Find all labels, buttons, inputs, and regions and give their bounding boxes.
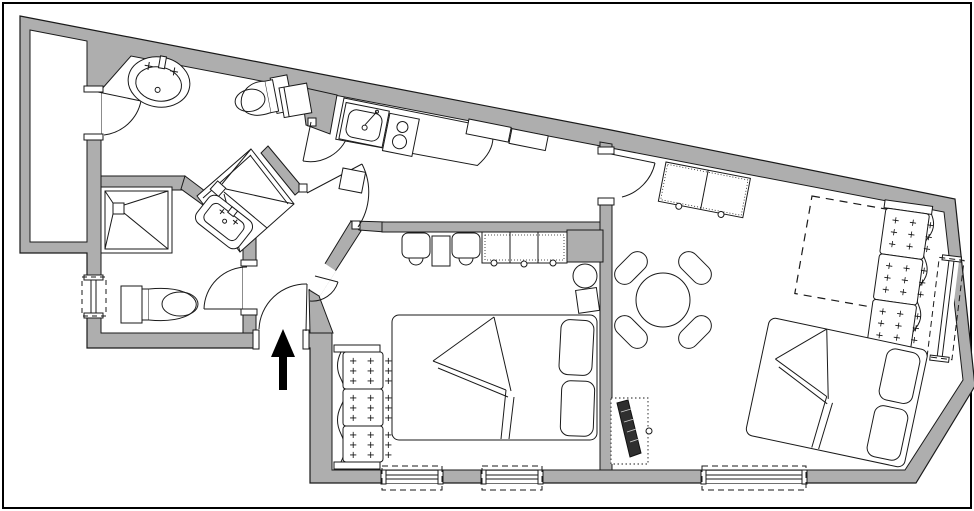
side-table	[432, 236, 450, 266]
wardrobe-bedroom	[482, 232, 567, 267]
svg-text:+ + +: + + +	[349, 450, 396, 461]
duct	[279, 83, 312, 117]
kitchen-cart	[339, 168, 366, 193]
stool	[576, 288, 600, 314]
square-shower-tray	[101, 187, 172, 253]
dining-table	[636, 273, 690, 327]
wall-duct-block	[567, 230, 603, 262]
sofa-bedroom: + + + + + + + + + + + + + + + + + + + + …	[334, 345, 396, 469]
double-bed-middle	[392, 315, 597, 440]
svg-text:+ + +: + + +	[349, 376, 396, 387]
lightwell-floor	[30, 30, 87, 242]
tv-unit	[611, 398, 652, 464]
floor-plan: + + + + + + + + + + + + + + + + + + + + …	[0, 0, 974, 511]
kitchen-sink	[339, 103, 389, 148]
round-side-table	[573, 264, 597, 288]
svg-text:+ + +: + + +	[349, 413, 396, 424]
